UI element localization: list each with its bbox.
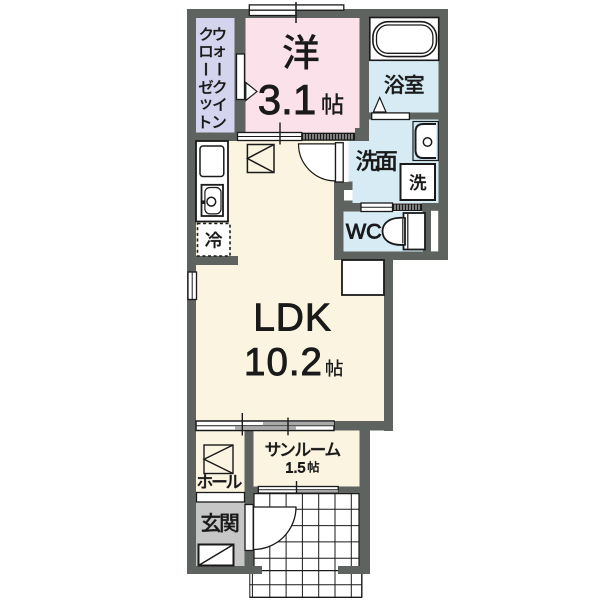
svg-text:3.1: 3.1 bbox=[258, 76, 316, 123]
svg-text:WC: WC bbox=[346, 219, 382, 243]
svg-text:10.2: 10.2 bbox=[244, 341, 323, 384]
svg-text:1.5: 1.5 bbox=[285, 460, 305, 476]
svg-text:LDK: LDK bbox=[253, 296, 332, 339]
